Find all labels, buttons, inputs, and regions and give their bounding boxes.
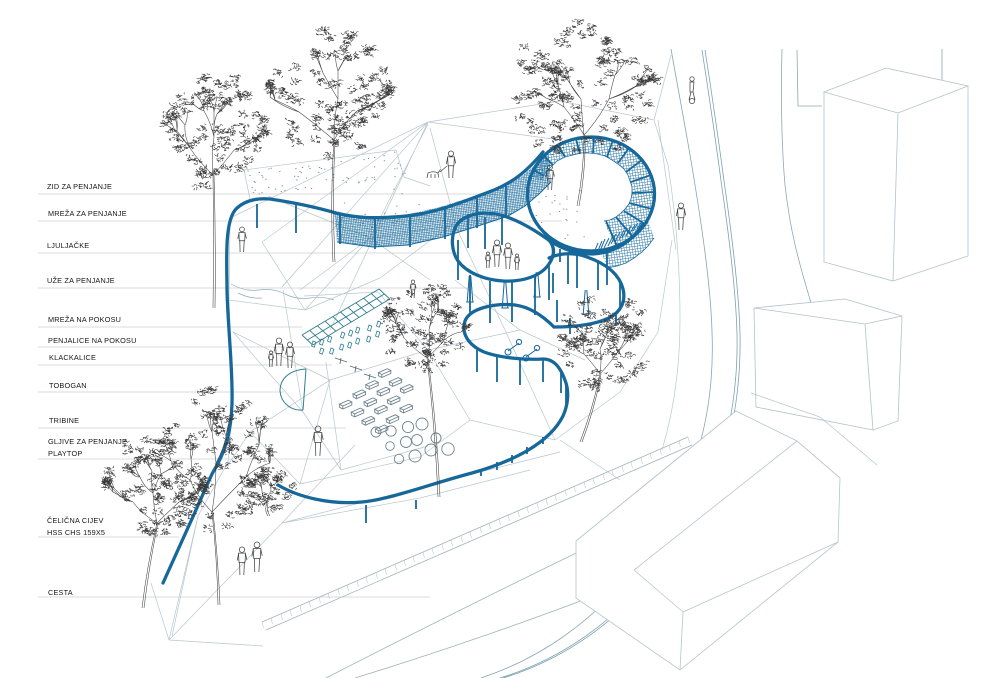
svg-text:LJULJAČKE: LJULJAČKE [47, 241, 89, 250]
svg-text:ČELIČNA CIJEV: ČELIČNA CIJEV [47, 516, 104, 525]
svg-text:ZID ZA PENJANJE: ZID ZA PENJANJE [47, 182, 112, 191]
svg-text:GLJIVE ZA PENJANJE: GLJIVE ZA PENJANJE [48, 437, 127, 446]
svg-text:CESTA: CESTA [48, 588, 73, 597]
svg-text:TOBOGAN: TOBOGAN [49, 381, 87, 390]
svg-text:HSS CHS 159X5: HSS CHS 159X5 [47, 528, 105, 537]
svg-text:PENJALICE NA POKOSU: PENJALICE NA POKOSU [48, 336, 137, 345]
svg-text:MREŽA NA POKOSU: MREŽA NA POKOSU [48, 315, 121, 324]
svg-text:KLACKALICE: KLACKALICE [49, 353, 96, 362]
svg-text:PLAYTOP: PLAYTOP [48, 449, 82, 458]
svg-text:MREŽA ZA PENJANJE: MREŽA ZA PENJANJE [48, 209, 127, 218]
svg-text:UŽE ZA PENJANJE: UŽE ZA PENJANJE [47, 276, 115, 285]
svg-text:TRIBINE: TRIBINE [49, 416, 79, 425]
